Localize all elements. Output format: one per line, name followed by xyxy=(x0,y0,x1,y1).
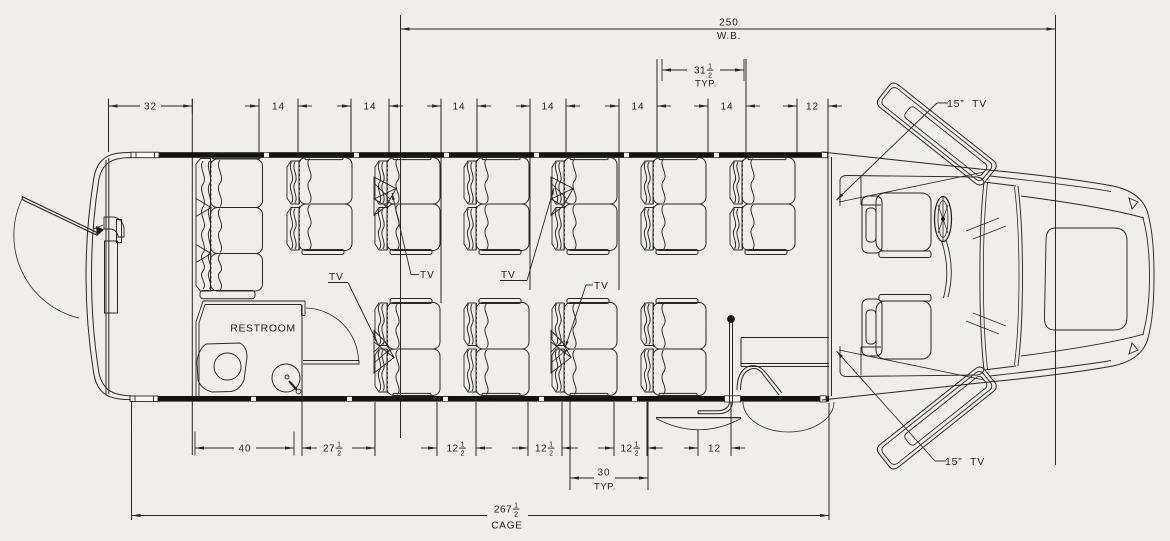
svg-text:14: 14 xyxy=(541,102,554,113)
svg-text:12: 12 xyxy=(446,444,458,455)
svg-text:2: 2 xyxy=(337,451,341,458)
svg-text:2: 2 xyxy=(635,451,639,458)
svg-text:TV: TV xyxy=(594,281,609,292)
svg-text:30: 30 xyxy=(597,468,610,479)
svg-text:1: 1 xyxy=(708,64,712,71)
svg-text:27: 27 xyxy=(323,444,335,455)
svg-text:12: 12 xyxy=(535,444,547,455)
svg-text:TV: TV xyxy=(420,270,435,281)
svg-text:TV: TV xyxy=(501,270,516,281)
svg-text:TYP.: TYP. xyxy=(594,482,616,493)
svg-text:15” TV: 15” TV xyxy=(945,456,985,468)
svg-text:14: 14 xyxy=(720,102,733,113)
svg-text:14: 14 xyxy=(272,102,285,113)
svg-text:40: 40 xyxy=(238,444,251,455)
svg-text:2: 2 xyxy=(514,512,518,519)
svg-text:12: 12 xyxy=(806,102,819,113)
svg-text:14: 14 xyxy=(452,102,465,113)
svg-text:14: 14 xyxy=(631,102,644,113)
svg-text:15” TV: 15” TV xyxy=(947,98,987,110)
svg-text:2: 2 xyxy=(549,451,553,458)
svg-text:2: 2 xyxy=(461,451,465,458)
svg-text:RESTROOM: RESTROOM xyxy=(230,323,295,335)
svg-text:32: 32 xyxy=(144,102,157,113)
svg-text:31: 31 xyxy=(694,66,706,77)
svg-text:12: 12 xyxy=(620,444,632,455)
svg-text:TV: TV xyxy=(329,272,344,283)
svg-text:267: 267 xyxy=(494,505,512,516)
svg-text:TYP.: TYP. xyxy=(695,79,717,90)
svg-text:CAGE: CAGE xyxy=(491,521,523,532)
svg-text:250: 250 xyxy=(719,18,739,29)
svg-text:W.B.: W.B. xyxy=(717,31,741,42)
svg-text:12: 12 xyxy=(708,444,721,455)
svg-text:14: 14 xyxy=(363,102,376,113)
